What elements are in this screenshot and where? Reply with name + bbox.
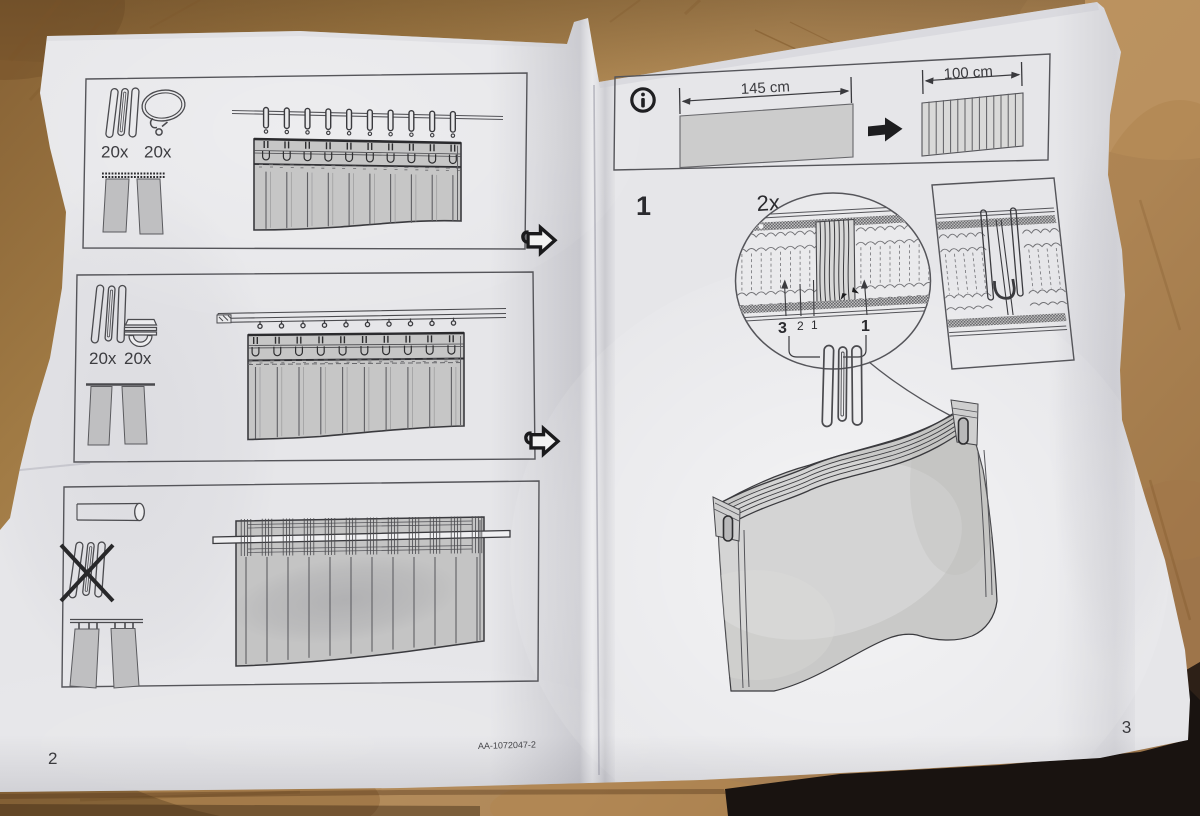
svg-text:1: 1 (811, 318, 818, 332)
svg-text:100 cm: 100 cm (943, 63, 993, 83)
svg-text:3: 3 (1121, 718, 1131, 737)
svg-text:20x: 20x (101, 143, 129, 162)
svg-text:AA-1072047-2: AA-1072047-2 (478, 739, 536, 751)
svg-text:20x: 20x (89, 349, 117, 368)
svg-text:1: 1 (861, 318, 870, 335)
svg-text:2: 2 (797, 319, 804, 333)
svg-text:20x: 20x (124, 349, 152, 368)
svg-text:2: 2 (48, 749, 57, 768)
svg-text:1: 1 (636, 191, 651, 221)
svg-text:3: 3 (778, 320, 787, 337)
svg-text:145 cm: 145 cm (740, 78, 790, 98)
svg-text:20x: 20x (144, 143, 172, 162)
